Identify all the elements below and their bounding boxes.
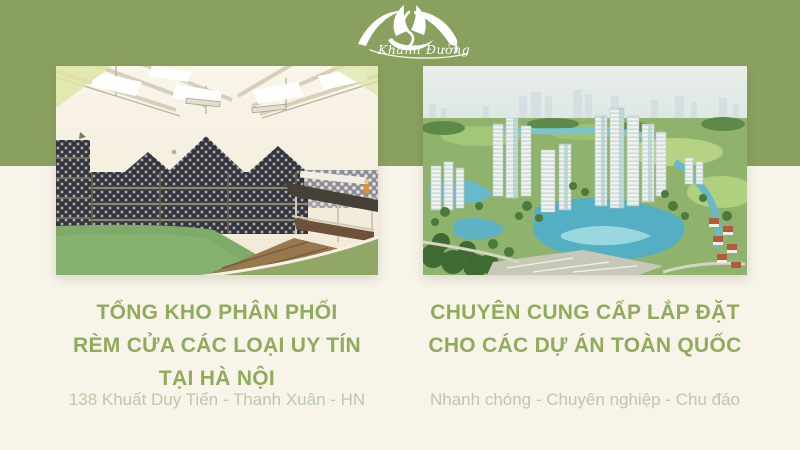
left-heading: TỔNG KHO PHÂN PHỐI RÈM CỬA CÁC LOẠI UY T… (42, 296, 392, 395)
brand-logo: Khánh Đường (348, 2, 478, 64)
right-subtitle: Nhanh chóng - Chuyên nghiệp - Chu đáo (415, 389, 755, 411)
left-subtitle: 138 Khuất Duy Tiến - Thanh Xuân - HN (42, 389, 392, 411)
right-heading: CHUYÊN CUNG CẤP LẮP ĐẶT CHO CÁC DỰ ÁN TO… (415, 296, 755, 362)
brand-name: Khánh Đường (378, 42, 478, 57)
city-aerial-photo (423, 66, 747, 275)
right-heading-line1: CHUYÊN CUNG CẤP LẮP ĐẶT (415, 296, 755, 329)
left-heading-line1: TỔNG KHO PHÂN PHỐI (42, 296, 392, 329)
promo-banner: Khánh Đường (0, 0, 800, 450)
right-heading-line2: CHO CÁC DỰ ÁN TOÀN QUỐC (415, 329, 755, 362)
warehouse-photo (56, 66, 378, 275)
left-heading-line2: RÈM CỬA CÁC LOẠI UY TÍN (42, 329, 392, 362)
